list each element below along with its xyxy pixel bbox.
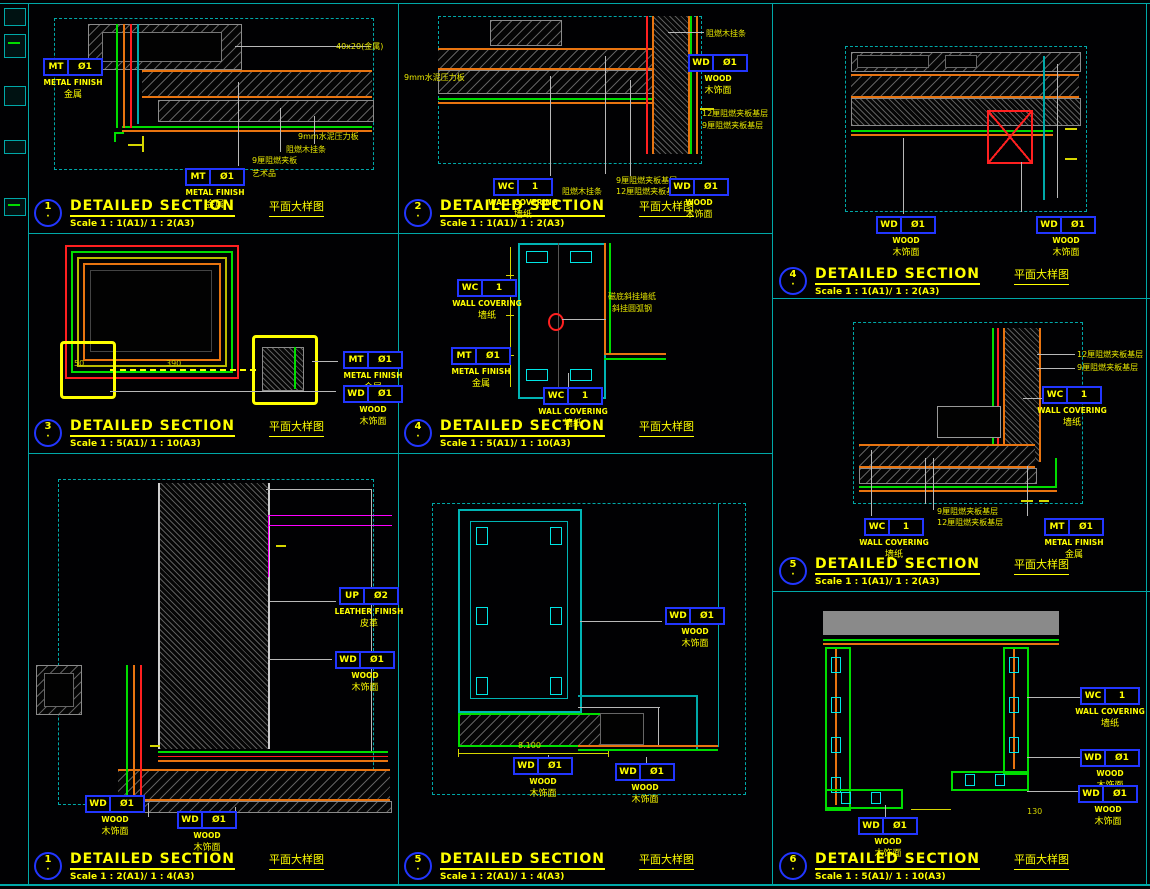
dimension-label: 130: [1027, 807, 1042, 816]
margin-mark: [8, 42, 20, 44]
leader-label: 9厘阻燃夹板基层: [937, 506, 998, 517]
dimension-label: 50: [74, 359, 84, 368]
cad-line: [987, 110, 1033, 164]
cad-line: [142, 136, 144, 152]
cad-line: [1043, 56, 1045, 200]
material-tag: MTØ1METAL FINISH金属: [1039, 518, 1109, 560]
detail-panel-5: WC1WALL COVERING墙纸 MTØ1METAL FINISH金属 WC…: [400, 235, 770, 453]
cad-line: [859, 444, 1035, 468]
divider-h3: [772, 298, 1150, 299]
cad-line: [857, 55, 929, 68]
cad-line: [268, 659, 332, 660]
leader-label: 9mm水泥压力板: [298, 131, 359, 142]
cad-line: [118, 801, 392, 813]
material-tag: WC1WALL COVERING墙纸: [1037, 386, 1107, 428]
scale-label: Scale 1 : 2(A1)/ 1 : 4(A3): [440, 872, 694, 882]
cad-line: [158, 751, 388, 753]
cad-line: [578, 749, 718, 751]
detail-panel-7: UPØ2LEATHER FINISH皮革 WDØ1WOOD木饰面 WDØ1WOO…: [30, 455, 398, 884]
margin-box: [4, 86, 26, 106]
material-tag: WC1WALL COVERING墙纸: [538, 387, 608, 429]
material-tag: WC1WALL COVERING墙纸: [1075, 687, 1145, 729]
cad-line: [871, 792, 881, 804]
margin-box: [4, 34, 26, 58]
cad-line: [126, 665, 128, 799]
title-en: DETAILED SECTION: [70, 851, 235, 870]
sheet-border-bottom: [0, 884, 1150, 886]
cad-line: [841, 792, 851, 804]
scale-label: Scale 1 : 5(A1)/ 1 : 10(A3): [70, 439, 324, 449]
title-cn: 平面大样图: [1014, 851, 1069, 870]
cad-drawing: [400, 455, 770, 849]
cad-line: [933, 458, 934, 510]
material-tag: WDØ1WOOD木饰面: [508, 757, 578, 799]
cad-line: [831, 737, 841, 753]
material-tag: WDØ1WOOD木饰面: [172, 811, 242, 853]
cad-line: [142, 70, 372, 98]
cad-line: [110, 369, 256, 371]
cad-line: [114, 132, 116, 142]
leader-label: 艺术品: [252, 168, 276, 179]
title-cn: 平面大样图: [639, 418, 694, 437]
cad-line: [458, 753, 608, 754]
material-tag: WDØ1WOOD木饰面: [853, 817, 923, 859]
cad-line: [823, 643, 1059, 645]
leader-label: 阻燃木挂条: [706, 28, 746, 39]
cad-line: [294, 347, 296, 389]
leader-label: 磁底斜挂墙纸: [608, 291, 656, 302]
title-cn: 平面大样图: [1014, 266, 1069, 285]
detail-number-badge: 4·: [404, 419, 432, 447]
cad-line: [1027, 466, 1028, 516]
cad-line: [1021, 162, 1022, 212]
cad-line: [600, 713, 644, 745]
detail-panel-8: 8.100 WDØ1WOOD木饰面 WDØ1WOOD木饰面 WDØ1WOOD木饰…: [400, 455, 770, 884]
cad-line: [1009, 697, 1019, 713]
leader-label: 阻燃木挂条: [286, 144, 326, 155]
scale-label: Scale 1 : 1(A1)/ 1 : 2(A3): [440, 219, 694, 229]
cad-line: [262, 347, 304, 391]
cad-line: [158, 100, 374, 122]
cad-line: [696, 695, 698, 751]
leader-label: 斜挂圆弧钢: [612, 303, 652, 314]
cad-line: [60, 341, 116, 399]
cad-line: [458, 749, 459, 757]
cad-line: [550, 76, 551, 176]
cad-line: [1009, 657, 1019, 673]
material-tag: UPØ2LEATHER FINISH皮革: [334, 587, 404, 629]
cad-line: [570, 369, 592, 381]
scale-label: Scale 1 : 1(A1)/ 1 : 2(A3): [815, 577, 1069, 587]
material-tag: WDØ1WOOD木饰面: [660, 607, 730, 649]
detail-number-badge: 3·: [34, 419, 62, 447]
scale-label: Scale 1 : 5(A1)/ 1 : 10(A3): [815, 872, 1069, 882]
scale-label: Scale 1 : 2(A1)/ 1 : 4(A3): [70, 872, 324, 882]
material-tag: WDØ1WOOD木饰面: [330, 651, 400, 693]
cad-line: [550, 677, 562, 695]
cad-line: [604, 358, 666, 360]
margin-box: [4, 140, 26, 154]
cad-line: [831, 657, 841, 673]
divider-h1: [28, 233, 772, 234]
material-tag: WC1WALL COVERING墙纸: [859, 518, 929, 560]
cad-line: [646, 16, 648, 154]
cad-line: [110, 391, 336, 392]
detail-panel-3: WDØ1WOOD木饰面 WDØ1WOOD木饰面 4· DETAILED SECT…: [775, 8, 1146, 298]
cad-line: [965, 774, 975, 786]
leader-label: 12厘阻燃夹板基层: [937, 517, 1003, 528]
cad-line: [268, 515, 392, 516]
cad-line: [903, 138, 904, 214]
material-tag: MTØ1METAL FINISH金属: [180, 168, 250, 210]
cad-line: [280, 108, 281, 152]
cad-line: [925, 458, 926, 504]
cad-line: [438, 98, 670, 100]
divider-h4: [772, 591, 1150, 592]
scale-label: Scale 1 : 1(A1)/ 1 : 2(A3): [815, 287, 1069, 297]
cad-line: [658, 707, 659, 747]
cad-line: [550, 607, 562, 625]
dimension-label: 8.100: [518, 741, 541, 750]
detail-number-badge: 2·: [404, 199, 432, 227]
detail-panel-4: 50 390 MTØ1METAL FINISH金属 WDØ1WOOD木饰面 3·…: [30, 235, 398, 453]
cad-line: [158, 760, 388, 762]
cad-line: [118, 769, 390, 801]
divider-h2: [28, 453, 772, 454]
material-tag: WDØ1WOOD木饰面: [871, 216, 941, 258]
cad-line: [122, 126, 372, 128]
cad-line: [548, 313, 564, 331]
cad-line: [268, 515, 269, 577]
detail-number-badge: 5·: [779, 557, 807, 585]
material-tag: WDØ1WOOD木饰面: [664, 178, 734, 220]
detail-number-badge: 4·: [779, 267, 807, 295]
cad-line: [133, 665, 135, 799]
cad-line: [1057, 64, 1058, 198]
margin-box: [4, 198, 26, 216]
title-en: DETAILED SECTION: [440, 851, 605, 870]
detail-panel-6: 12厘阻燃夹板基层 9厘阻燃夹板基层 WC1WALL COVERING墙纸 9厘…: [775, 300, 1146, 591]
leader-label: 12厘阻燃夹板基层: [702, 108, 768, 119]
material-tag: WDØ1WOOD木饰面: [80, 795, 150, 837]
cad-line: [150, 745, 160, 747]
cad-line: [158, 756, 388, 757]
cad-line: [578, 745, 718, 747]
cad-line: [578, 695, 698, 697]
cad-line: [476, 527, 488, 545]
title-en: DETAILED SECTION: [70, 418, 235, 437]
divider-v2: [772, 3, 773, 885]
cad-line: [604, 243, 606, 355]
cad-line: [238, 82, 239, 166]
material-tag: MTØ1METAL FINISH金属: [38, 58, 108, 100]
cad-line: [580, 621, 662, 622]
cad-line: [102, 32, 222, 62]
cad-line: [506, 275, 514, 276]
material-tag: WDØ1WOOD木饰面: [610, 763, 680, 805]
cad-line: [1037, 368, 1075, 369]
material-tag: WDØ1WOOD木饰面: [1031, 216, 1101, 258]
cad-line: [1055, 458, 1057, 488]
title-en: DETAILED SECTION: [815, 266, 980, 285]
title-cn: 平面大样图: [269, 418, 324, 437]
cad-line: [630, 80, 631, 176]
cad-line: [490, 20, 562, 46]
cad-line: [270, 601, 336, 602]
leader-label: 9厘阻燃夹板基层: [1077, 362, 1138, 373]
cad-line: [668, 32, 704, 33]
cad-line: [137, 24, 139, 124]
material-tag: WC1WALL COVERING墙纸: [488, 178, 558, 220]
cad-line: [526, 369, 548, 381]
sheet-border-right: [1146, 3, 1147, 885]
cad-line: [1065, 128, 1077, 130]
detail-number-badge: 5·: [404, 852, 432, 880]
cad-line: [605, 56, 606, 174]
title-cn: 平面大样图: [269, 198, 324, 217]
cad-line: [116, 24, 118, 128]
cad-line: [268, 525, 392, 526]
scale-label: Scale 1 : 1(A1)/ 1 : 2(A3): [70, 219, 324, 229]
title-cn: 平面大样图: [269, 851, 324, 870]
leader-label: 阻燃木挂条: [562, 186, 602, 197]
cad-line: [823, 611, 1059, 635]
title-cn: 平面大样图: [639, 851, 694, 870]
cad-line: [945, 55, 977, 68]
cad-line: [1009, 737, 1019, 753]
detail-number-badge: 1·: [34, 852, 62, 880]
cad-line: [871, 450, 872, 516]
cad-line: [1039, 500, 1049, 502]
cad-line: [823, 639, 1059, 641]
cad-line: [831, 697, 841, 713]
leader-label: 9厘阻燃夹板: [252, 155, 297, 166]
cad-line: [44, 673, 74, 707]
cad-line: [825, 789, 903, 809]
cad-line: [476, 607, 488, 625]
cad-sheet-canvas[interactable]: MTØ1METAL FINISH金属 MTØ1METAL FINISH金属 40…: [0, 0, 1150, 889]
detail-number-badge: 1·: [34, 199, 62, 227]
cad-line: [438, 102, 670, 104]
cad-line: [570, 251, 592, 263]
cad-line: [859, 468, 1037, 484]
cad-line: [1027, 791, 1079, 792]
material-tag: WDØ1WOOD木饰面: [683, 54, 753, 96]
cad-line: [951, 771, 1029, 791]
sheet-border-top: [0, 3, 1150, 4]
cad-line: [140, 665, 142, 805]
cad-line: [90, 270, 212, 352]
cad-line: [578, 707, 660, 708]
sheet-border-left: [28, 3, 29, 885]
cad-line: [1065, 158, 1077, 160]
cad-line: [992, 328, 994, 460]
detail-panel-2: WDØ1WOOD木饰面 WC1WALL COVERING墙纸 WDØ1WOOD木…: [400, 8, 770, 233]
material-tag: WDØ1WOOD木饰面: [1073, 785, 1143, 827]
detail-number-badge: 6·: [779, 852, 807, 880]
leader-label: 12厘阻燃夹板基层: [1077, 349, 1143, 360]
cad-line: [911, 809, 951, 810]
cad-line: [130, 24, 132, 128]
leader-label: 40x20(金属): [336, 41, 383, 52]
cad-line: [851, 98, 1081, 126]
cad-line: [937, 406, 1001, 438]
divider-v1: [398, 3, 399, 885]
cad-line: [1021, 500, 1033, 502]
cad-line: [266, 489, 372, 490]
cad-line: [562, 319, 606, 320]
cad-line: [438, 48, 662, 70]
leader-label: 9mm水泥压力板: [404, 72, 465, 83]
cad-line: [604, 353, 666, 355]
cad-line: [158, 483, 270, 749]
material-tag: WC1WALL COVERING墙纸: [452, 279, 522, 321]
cad-line: [1037, 354, 1075, 355]
cad-line: [1003, 328, 1041, 462]
dimension-label: 390: [166, 359, 181, 368]
cad-line: [123, 24, 125, 128]
cad-line: [550, 527, 562, 545]
cad-line: [526, 251, 548, 263]
material-tag: MTØ1METAL FINISH金属: [446, 347, 516, 389]
cad-line: [476, 677, 488, 695]
cad-line: [995, 774, 1005, 786]
cad-line: [312, 361, 338, 362]
leader-label: 9厘阻燃夹板基层: [702, 120, 763, 131]
scale-label: Scale 1 : 5(A1)/ 1 : 10(A3): [440, 439, 694, 449]
margin-mark: [8, 204, 20, 206]
material-tag: WDØ1WOOD木饰面: [338, 385, 408, 427]
cad-line: [276, 545, 286, 547]
detail-panel-1: MTØ1METAL FINISH金属 MTØ1METAL FINISH金属 40…: [30, 8, 398, 233]
margin-box: [4, 8, 26, 26]
detail-panel-9: 130 WC1WALL COVERING墙纸 WDØ1WOOD木饰面 WDØ1W…: [775, 593, 1146, 884]
